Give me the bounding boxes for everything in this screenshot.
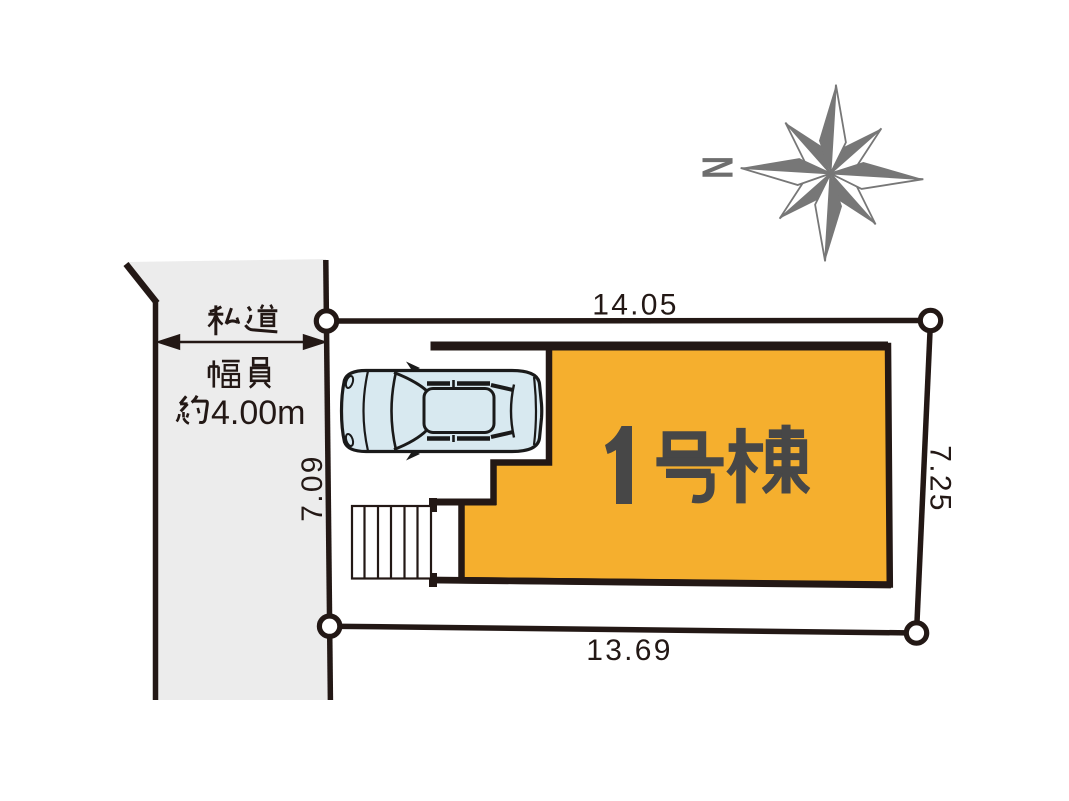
svg-text:4.00m: 4.00m [211, 394, 306, 432]
svg-text:7.09: 7.09 [296, 454, 329, 522]
svg-text:7.25: 7.25 [924, 445, 957, 513]
svg-text:13.69: 13.69 [586, 634, 673, 667]
svg-text:14.05: 14.05 [592, 289, 679, 322]
svg-text:N: N [692, 156, 741, 179]
